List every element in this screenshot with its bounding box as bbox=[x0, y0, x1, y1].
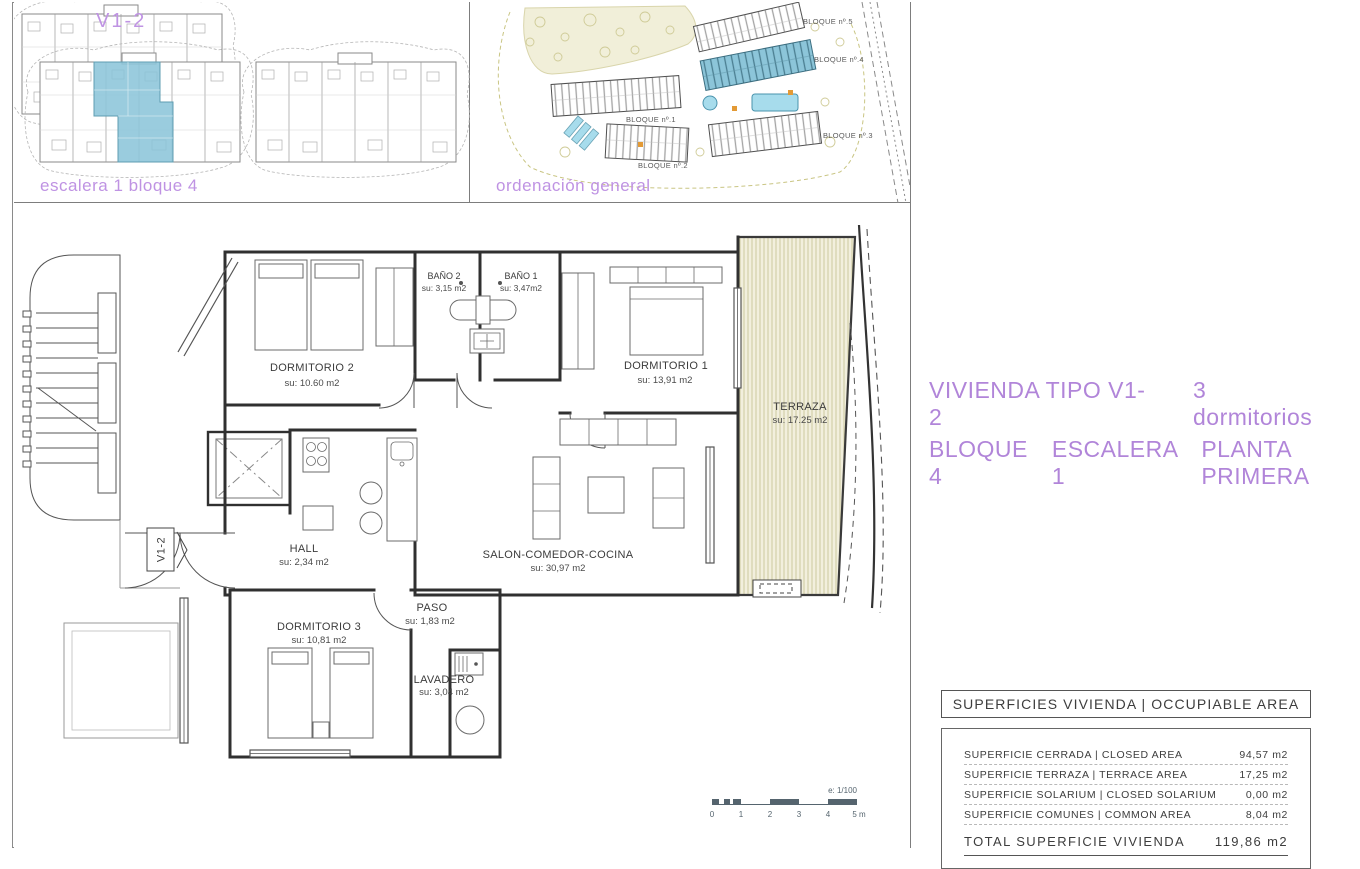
row-value: 94,57 m2 bbox=[1239, 749, 1288, 761]
keyplan-caption: escalera 1 bloque 4 bbox=[40, 176, 198, 196]
plot-boundary-line bbox=[859, 225, 874, 608]
dorm3-furniture bbox=[268, 648, 373, 738]
table-row: SUPERFICIE CERRADA | CLOSED AREA 94,57 m… bbox=[964, 745, 1288, 765]
salon-furniture bbox=[533, 419, 684, 539]
room-area-paso: su: 1,83 m2 bbox=[405, 616, 455, 627]
room-label-paso: PASO bbox=[417, 602, 448, 614]
room-label-terraza: TERRAZA bbox=[773, 401, 827, 413]
stair-label: ESCALERA 1 bbox=[1052, 436, 1177, 490]
site-label-bloque-2: BLOQUE nº.2 bbox=[638, 162, 692, 171]
dorm1-furniture bbox=[562, 267, 722, 369]
areas-table: SUPERFICIES VIVIENDA | OCCUPIABLE AREA S… bbox=[941, 690, 1311, 869]
room-label-lavadero: LAVADERO bbox=[414, 674, 475, 686]
title-block: VIVIENDA TIPO V1-2 3 dormitorios BLOQUE … bbox=[929, 377, 1329, 490]
room-label-dorm1: DORMITORIO 1 bbox=[624, 360, 708, 372]
scale-tick-4: 4 bbox=[826, 810, 831, 819]
scale-tick-3: 3 bbox=[797, 810, 802, 819]
small-pools bbox=[564, 116, 599, 150]
round-pool bbox=[703, 96, 717, 110]
room-area-hall: su: 2,34 m2 bbox=[279, 557, 329, 568]
room-area-salon: su: 30,97 m2 bbox=[531, 563, 586, 574]
bedrooms-count: 3 dormitorios bbox=[1193, 377, 1329, 431]
unit-type-title: V1-2 bbox=[96, 10, 146, 33]
west-balcony bbox=[64, 598, 188, 743]
scale-tick-1: 1 bbox=[739, 810, 744, 819]
site-label-bloque-5: BLOQUE nº.5 bbox=[803, 18, 857, 27]
room-area-lavadero: su: 3,04 m2 bbox=[419, 687, 469, 698]
green-area bbox=[524, 6, 696, 74]
site-label-bloque-3: BLOQUE nº.3 bbox=[823, 132, 877, 141]
row-label: SUPERFICIE COMUNES | COMMON AREA bbox=[964, 809, 1191, 821]
siteplan-caption: ordenación general bbox=[496, 176, 651, 196]
row-label: SUPERFICIE CERRADA | CLOSED AREA bbox=[964, 749, 1183, 761]
room-label-bano2: BAÑO 2 bbox=[427, 271, 460, 281]
row-value: 8,04 m2 bbox=[1246, 809, 1288, 821]
room-label-hall: HALL bbox=[290, 543, 319, 555]
row-label: SUPERFICIE TERRAZA | TERRACE AREA bbox=[964, 769, 1187, 781]
site-plan-drawing bbox=[470, 2, 910, 203]
areas-table-body: SUPERFICIE CERRADA | CLOSED AREA 94,57 m… bbox=[941, 728, 1311, 869]
room-label-dorm2: DORMITORIO 2 bbox=[270, 362, 354, 374]
floor-label: PLANTA PRIMERA bbox=[1201, 436, 1329, 490]
areas-table-header: SUPERFICIES VIVIENDA | OCCUPIABLE AREA bbox=[941, 690, 1311, 718]
room-label-bano1: BAÑO 1 bbox=[504, 271, 537, 281]
site-label-bloque-4: BLOQUE nº.4 bbox=[814, 56, 868, 65]
right-column: VIVIENDA TIPO V1-2 3 dormitorios BLOQUE … bbox=[910, 2, 1346, 848]
dwelling-type-title: VIVIENDA TIPO V1-2 bbox=[929, 377, 1153, 431]
room-area-terraza: su: 17.25 m2 bbox=[773, 415, 828, 426]
site-block-3 bbox=[708, 111, 821, 156]
site-block-1 bbox=[551, 76, 681, 117]
road bbox=[862, 2, 910, 203]
site-label-bloque-1: BLOQUE nº.1 bbox=[626, 116, 680, 125]
terrace-service-box bbox=[753, 580, 801, 597]
table-row: SUPERFICIE COMUNES | COMMON AREA 8,04 m2 bbox=[964, 805, 1288, 825]
room-area-bano2: su: 3,15 m2 bbox=[422, 283, 467, 293]
room-label-salon: SALON-COMEDOR-COCINA bbox=[483, 549, 634, 561]
room-label-dorm3: DORMITORIO 3 bbox=[277, 621, 361, 633]
keyplan-drawing bbox=[14, 2, 470, 203]
panel-site-plan: BLOQUE nº.5 BLOQUE nº.4 BLOQUE nº.1 BLOQ… bbox=[470, 2, 910, 203]
room-area-dorm2: su: 10.60 m2 bbox=[285, 378, 340, 389]
floor-plan-panel: V1-2 DORMITORIO 2 su: 10.60 m2 BAÑO 2 su… bbox=[14, 203, 910, 848]
panel-unit-keyplan: V1-2 escalera 1 bloque 4 bbox=[14, 2, 470, 203]
table-total-row: TOTAL SUPERFICIE VIVIENDA 119,86 m2 bbox=[964, 825, 1288, 856]
row-value: 0,00 m2 bbox=[1246, 789, 1288, 801]
row-label: SUPERFICIE SOLARIUM | CLOSED SOLARIUM bbox=[964, 789, 1216, 801]
scale-bar: e: 1/100 0 1 2 3 4 5 m bbox=[710, 786, 866, 819]
floor-plan-drawing: V1-2 DORMITORIO 2 su: 10.60 m2 BAÑO 2 su… bbox=[14, 203, 910, 848]
dorm2-furniture bbox=[255, 260, 413, 350]
unit-marker-label: V1-2 bbox=[156, 537, 168, 562]
pool bbox=[752, 94, 798, 111]
room-area-dorm1: su: 13,91 m2 bbox=[638, 375, 693, 386]
kitchen bbox=[303, 438, 417, 541]
room-area-bano1: su: 3,47m2 bbox=[500, 283, 542, 293]
scale-tick-2: 2 bbox=[768, 810, 773, 819]
total-value: 119,86 m2 bbox=[1215, 834, 1288, 849]
scale-tick-5: 5 m bbox=[852, 810, 866, 819]
scale-label: e: 1/100 bbox=[828, 786, 857, 795]
building-adjacent-plan bbox=[241, 42, 469, 178]
scale-tick-0: 0 bbox=[710, 810, 715, 819]
site-block-2 bbox=[605, 124, 689, 162]
table-row: SUPERFICIE TERRAZA | TERRACE AREA 17,25 … bbox=[964, 765, 1288, 785]
table-row: SUPERFICIE SOLARIUM | CLOSED SOLARIUM 0,… bbox=[964, 785, 1288, 805]
room-area-dorm3: su: 10,81 m2 bbox=[292, 635, 347, 646]
total-label: TOTAL SUPERFICIE VIVIENDA bbox=[964, 834, 1185, 849]
unit-marker: V1-2 bbox=[147, 528, 187, 571]
row-value: 17,25 m2 bbox=[1239, 769, 1288, 781]
block-label: BLOQUE 4 bbox=[929, 436, 1028, 490]
elevator-shaft bbox=[208, 432, 290, 505]
stairwell bbox=[23, 255, 120, 520]
